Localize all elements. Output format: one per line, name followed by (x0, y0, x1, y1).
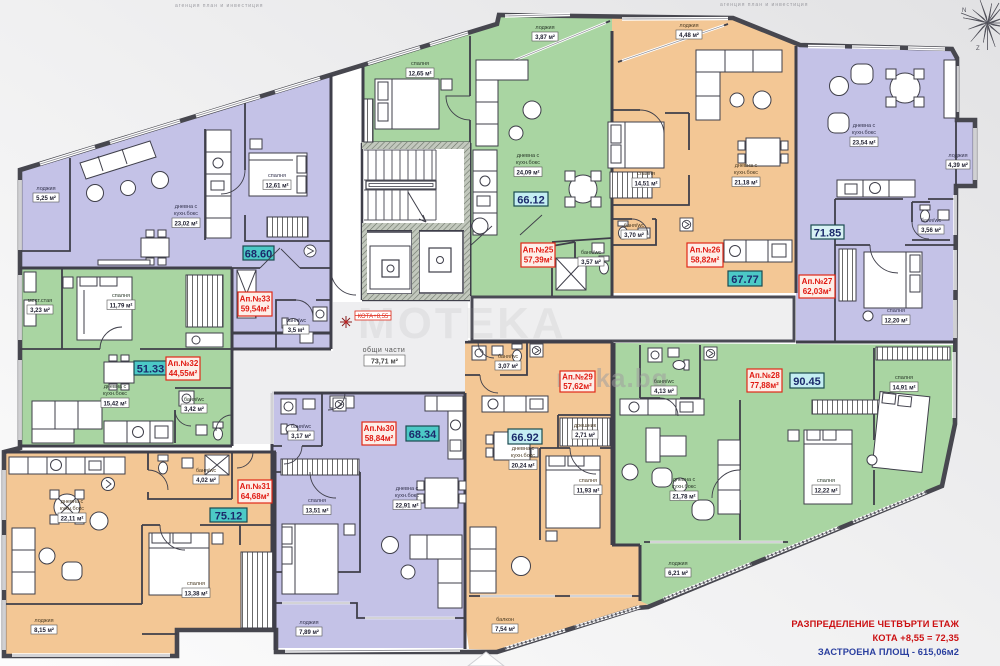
svg-text:спалня: спалня (411, 61, 429, 67)
svg-text:3,87 м²: 3,87 м² (535, 34, 555, 41)
svg-text:66.92: 66.92 (511, 432, 539, 444)
svg-text:агенция план и инвестиция: агенция план и инвестиция (175, 3, 263, 9)
svg-text:балкон: балкон (496, 617, 514, 623)
svg-text:58,82м²: 58,82м² (691, 256, 720, 265)
svg-text:MOTEKA: MOTEKA (358, 299, 567, 348)
svg-text:77,88м²: 77,88м² (750, 381, 779, 390)
svg-text:дневна с: дневна с (396, 486, 419, 492)
svg-text:мест.стая: мест.стая (28, 298, 52, 304)
svg-text:Ап.№31: Ап.№31 (240, 482, 271, 491)
svg-text:23,02 м²: 23,02 м² (174, 221, 197, 228)
svg-text:кухн.бокс: кухн.бокс (395, 493, 419, 499)
svg-text:13,51 м²: 13,51 м² (305, 508, 328, 515)
svg-text:3,70 м²: 3,70 м² (624, 232, 644, 239)
svg-text:12,65 м²: 12,65 м² (408, 71, 431, 78)
svg-text:РАЗПРЕДЕЛЕНИЕ ЧЕТВЪРТИ ЕТАЖ: РАЗПРЕДЕЛЕНИЕ ЧЕТВЪРТИ ЕТАЖ (791, 619, 959, 629)
svg-text:кухн.бокс: кухн.бокс (174, 211, 198, 217)
svg-text:общи части: общи части (363, 346, 406, 354)
svg-text:спалня: спалня (579, 478, 597, 484)
svg-text:агенция план и инвестиция: агенция план и инвестиция (720, 2, 808, 8)
svg-text:баня/wc: баня/wc (291, 424, 312, 430)
svg-text:68.60: 68.60 (245, 249, 273, 261)
svg-text:спалня: спалня (308, 498, 326, 504)
svg-text:лоджия: лоджия (36, 186, 55, 192)
svg-text:кухн.бокс: кухн.бокс (734, 170, 758, 176)
svg-text:3,57 м²: 3,57 м² (581, 259, 601, 266)
svg-text:лоджия: лоджия (948, 153, 967, 159)
svg-text:Ап.№26: Ап.№26 (690, 246, 721, 255)
svg-text:14,91 м²: 14,91 м² (892, 385, 915, 392)
svg-text:ЗАСТРОЕНА ПЛОЩ - 615,06м2: ЗАСТРОЕНА ПЛОЩ - 615,06м2 (818, 647, 959, 657)
svg-text:3,42 м²: 3,42 м² (184, 406, 204, 413)
svg-text:8,15 м²: 8,15 м² (34, 627, 54, 634)
svg-text:N: N (962, 8, 966, 14)
svg-text:лоджия: лоджия (34, 618, 53, 624)
svg-text:71.85: 71.85 (814, 228, 842, 240)
svg-text:Ап.№28: Ап.№28 (749, 371, 780, 380)
svg-text:Z: Z (976, 46, 980, 52)
svg-text:57,62м²: 57,62м² (563, 382, 592, 391)
svg-text:73,71 м²: 73,71 м² (371, 359, 399, 366)
svg-text:Ап.№30: Ап.№30 (364, 424, 395, 433)
svg-text:13,38 м²: 13,38 м² (184, 591, 207, 598)
svg-text:кухн.бокс: кухн.бокс (516, 160, 540, 166)
svg-text:3,5 м²: 3,5 м² (288, 327, 304, 334)
svg-text:Ап.№32: Ап.№32 (168, 359, 199, 368)
svg-text:спалня: спалня (895, 375, 913, 381)
svg-text:баня/wc: баня/wc (624, 223, 645, 229)
svg-text:7,89 м²: 7,89 м² (299, 629, 319, 636)
svg-text:спалня: спалня (268, 173, 286, 179)
svg-text:Ап.№25: Ап.№25 (523, 246, 554, 255)
svg-text:23,54 м²: 23,54 м² (852, 140, 875, 147)
svg-text:20,24 м²: 20,24 м² (511, 463, 534, 470)
svg-text:баня/wc: баня/wc (196, 468, 217, 474)
svg-text:Ап.№27: Ап.№27 (802, 277, 833, 286)
svg-text:дневна с: дневна с (104, 384, 127, 390)
svg-text:дневна с: дневна с (512, 446, 535, 452)
svg-text:2,71 м²: 2,71 м² (575, 432, 595, 439)
svg-text:дневна с: дневна с (61, 499, 84, 505)
svg-text:24,09 м²: 24,09 м² (516, 170, 539, 177)
svg-text:кухн.бокс: кухн.бокс (852, 130, 876, 136)
svg-text:21,78 м²: 21,78 м² (672, 494, 695, 501)
svg-text:баня/wc: баня/wc (581, 250, 602, 256)
svg-text:баня/wc: баня/wc (286, 318, 307, 324)
svg-text:14,51 м²: 14,51 м² (634, 181, 657, 188)
svg-text:11,93 м²: 11,93 м² (577, 488, 600, 495)
svg-text:спалня: спалня (112, 293, 130, 299)
svg-text:7,54 м²: 7,54 м² (495, 626, 515, 633)
svg-text:спалня: спалня (637, 171, 655, 177)
svg-text:лоджия: лоджия (535, 25, 554, 31)
svg-text:22,91 м²: 22,91 м² (395, 503, 418, 510)
svg-text:лоджия: лоджия (679, 23, 698, 29)
svg-text:11,79 м²: 11,79 м² (110, 303, 133, 310)
svg-text:22,11 м²: 22,11 м² (61, 516, 84, 523)
svg-text:3,17 м²: 3,17 м² (291, 433, 311, 440)
svg-text:спалня: спалня (887, 308, 905, 314)
svg-text:лоджия: лоджия (668, 561, 687, 567)
svg-text:баня/wc: баня/wc (184, 397, 205, 403)
svg-text:дневна с: дневна с (517, 153, 540, 159)
svg-text:6,21 м²: 6,21 м² (668, 570, 688, 577)
svg-text:3,07 м²: 3,07 м² (498, 363, 518, 370)
svg-text:Ап.№33: Ап.№33 (240, 295, 271, 304)
svg-text:90.45: 90.45 (793, 376, 821, 388)
svg-text:баня/wc: баня/wc (921, 218, 942, 224)
svg-text:спалня: спалня (187, 581, 205, 587)
svg-text:дневна с: дневна с (853, 123, 876, 129)
svg-text:4,39 м²: 4,39 м² (948, 162, 968, 169)
svg-text:КОТА+8,55: КОТА+8,55 (358, 314, 389, 320)
svg-text:68.34: 68.34 (409, 429, 437, 441)
svg-text:66.12: 66.12 (517, 195, 545, 207)
svg-text:67.77: 67.77 (731, 274, 759, 286)
svg-text:62,03м²: 62,03м² (803, 287, 832, 296)
svg-text:баня/wc: баня/wc (498, 354, 519, 360)
svg-text:64,68м²: 64,68м² (241, 492, 270, 501)
svg-text:75.12: 75.12 (215, 511, 243, 523)
svg-text:Ап.№29: Ап.№29 (562, 373, 593, 382)
svg-text:12,22 м²: 12,22 м² (814, 488, 837, 495)
svg-text:дневна с: дневна с (735, 163, 758, 169)
svg-text:спалня: спалня (817, 478, 835, 484)
svg-text:59,54м²: 59,54м² (241, 305, 270, 314)
svg-text:кухн.бокс: кухн.бокс (103, 391, 127, 397)
svg-text:44,55м²: 44,55м² (169, 369, 198, 378)
svg-text:4,02 м²: 4,02 м² (196, 477, 216, 484)
svg-text:12,20 м²: 12,20 м² (884, 318, 907, 325)
svg-text:4,13 м²: 4,13 м² (654, 388, 674, 395)
svg-text:КОТА +8,55 = 72,35: КОТА +8,55 = 72,35 (873, 633, 959, 643)
svg-text:кухн.бокс: кухн.бокс (60, 506, 84, 512)
svg-text:баня/wc: баня/wc (654, 379, 675, 385)
svg-text:4,48 м²: 4,48 м² (679, 32, 699, 39)
svg-text:12,61 м²: 12,61 м² (265, 183, 288, 190)
svg-text:3,56 м²: 3,56 м² (921, 227, 941, 234)
svg-text:5,25 м²: 5,25 м² (36, 195, 56, 202)
svg-text:лоджия: лоджия (299, 620, 318, 626)
svg-text:3,23 м²: 3,23 м² (30, 307, 50, 314)
svg-text:57,39м²: 57,39м² (524, 256, 553, 265)
svg-text:дрешник: дрешник (574, 423, 597, 429)
svg-text:15,42 м²: 15,42 м² (103, 401, 126, 408)
svg-text:58,84м²: 58,84м² (365, 434, 394, 443)
svg-text:дневна с: дневна с (673, 477, 696, 483)
svg-text:дневна с: дневна с (175, 204, 198, 210)
svg-text:кухн.бокс: кухн.бокс (511, 453, 535, 459)
svg-text:51.33: 51.33 (137, 364, 165, 376)
svg-text:кухн.бокс: кухн.бокс (672, 484, 696, 490)
svg-text:21,18 м²: 21,18 м² (734, 180, 757, 187)
